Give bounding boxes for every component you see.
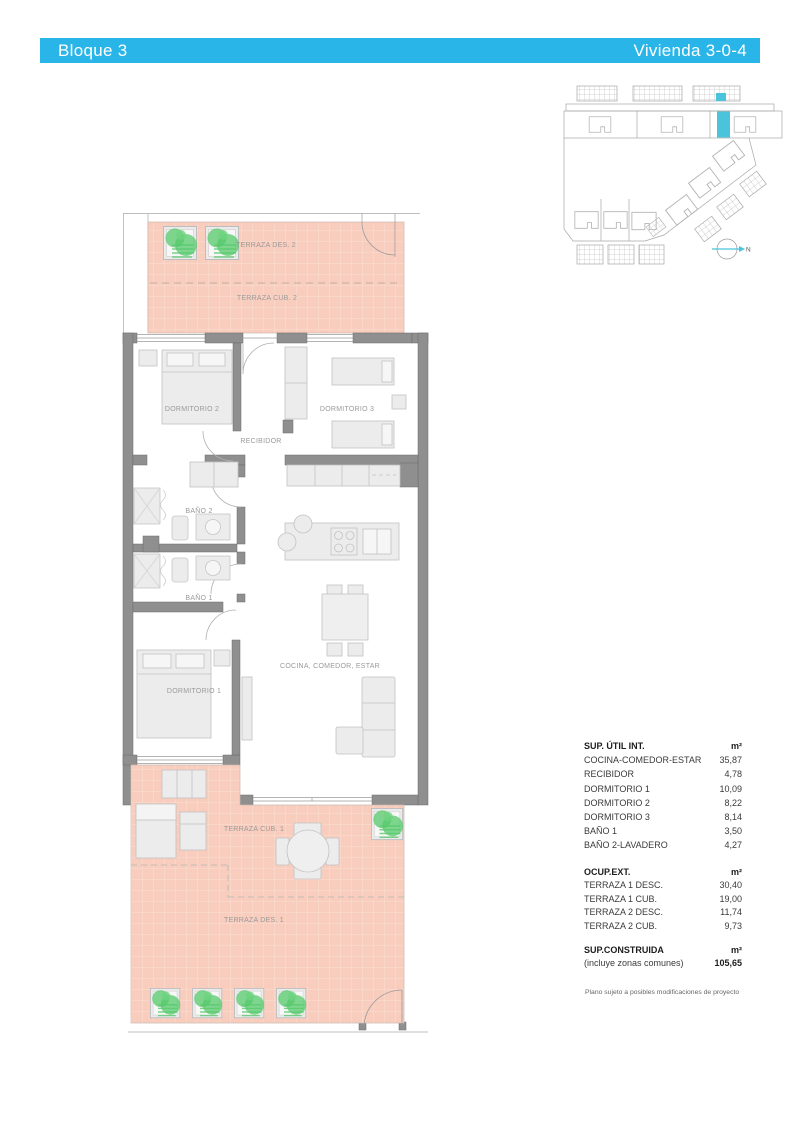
room-label-terraza-cub-1: TERRAZA CUB. 1 <box>224 826 284 833</box>
table-row: RECIBIDOR4,78 <box>584 767 742 781</box>
nightstand <box>139 350 157 366</box>
table-row: DORMITORIO 110,09 <box>584 782 742 796</box>
building-row <box>564 111 782 138</box>
terrace-1-planter-3 <box>234 988 264 1017</box>
window-dormitorio-2 <box>137 335 205 342</box>
stool <box>294 515 312 533</box>
toilet-bano-1 <box>172 558 188 582</box>
outdoor-lounger-2 <box>180 812 206 850</box>
terrace-1-planter-2 <box>192 988 222 1017</box>
outlying-pergolas <box>695 171 767 242</box>
stool <box>278 533 296 551</box>
disclaimer-note: Plano sujeto a posibles modificaciones d… <box>585 989 760 996</box>
table-row: BAÑO 13,50 <box>584 824 742 838</box>
kitchen-counter <box>287 465 400 486</box>
exterior-areas-table: OCUP.EXT. m² TERRAZA 1 DESC.30,40 TERRAZ… <box>584 866 742 933</box>
terrace-1-planter-4 <box>276 988 306 1017</box>
window-dormitorio-1 <box>137 757 223 764</box>
terrace-2-plant-2 <box>206 227 240 260</box>
bottom-left-buildings <box>575 199 656 241</box>
table-row: TERRAZA 1 CUB.19,00 <box>584 893 742 906</box>
access-band <box>566 104 774 111</box>
highlighted-unit <box>717 112 730 138</box>
sofa <box>362 677 395 757</box>
table-row: DORMITORIO 38,14 <box>584 810 742 824</box>
room-label-terraza-des-2: TERRAZA DES. 2 <box>236 242 296 249</box>
interior-areas-table: SUP. ÚTIL INT. m² COCINA-COMEDOR-ESTAR35… <box>584 739 742 853</box>
room-label-dormitorio-3: DORMITORIO 3 <box>320 406 374 413</box>
patio-table <box>287 830 329 872</box>
table-row: TERRAZA 2 DESC.11,74 <box>584 906 742 919</box>
sliding-door-living <box>253 798 372 802</box>
table-row: BAÑO 2-LAVADERO4,27 <box>584 838 742 852</box>
tv-unit <box>242 677 252 740</box>
table-row: TERRAZA 1 DESC.30,40 <box>584 879 742 892</box>
table-header: SUP. ÚTIL INT. m² <box>584 739 742 753</box>
table-header: SUP.CONSTRUIDA m² <box>584 944 742 957</box>
site-key-plan: N <box>564 86 782 264</box>
terrace-1: TERRAZA CUB. 1 TERRAZA DES. 1 <box>128 765 428 1032</box>
nightstand <box>214 650 230 666</box>
dining-chair <box>348 643 363 656</box>
table-row: DORMITORIO 28,22 <box>584 796 742 810</box>
pergola-grids-bottom <box>577 245 664 264</box>
terrace-2: TERRAZA DES. 2 TERRAZA CUB. 2 <box>123 213 420 333</box>
room-label-terraza-des-1: TERRAZA DES. 1 <box>224 917 284 924</box>
table-header: OCUP.EXT. m² <box>584 866 742 879</box>
north-indicator: N <box>712 239 751 259</box>
room-label-dormitorio-1: DORMITORIO 1 <box>167 688 221 695</box>
table-row: COCINA-COMEDOR-ESTAR35,87 <box>584 753 742 767</box>
dining-table <box>322 594 368 640</box>
terrace-1-plant <box>371 808 403 839</box>
dining-chair <box>327 643 342 656</box>
diagonal-buildings <box>646 140 745 236</box>
room-label-cocina: COCINA, COMEDOR, ESTAR <box>280 663 380 670</box>
door-entry <box>243 343 274 374</box>
room-label-dormitorio-2: DORMITORIO 2 <box>165 406 219 413</box>
north-label: N <box>746 247 751 254</box>
window-dormitorio-3 <box>307 335 353 342</box>
kitchen-living <box>278 465 400 757</box>
pergola-grids-top <box>577 86 740 101</box>
terrace-1-planter-1 <box>150 988 180 1017</box>
room-label-bano-1: BAÑO 1 <box>185 593 212 602</box>
toilet-bano-2 <box>172 516 188 540</box>
terrace-2-plant-1 <box>164 227 198 260</box>
sofa-chaise <box>336 727 363 754</box>
room-label-bano-2: BAÑO 2 <box>185 506 212 515</box>
plan-sheet: Bloque 3 Vivienda 3-0-4 <box>0 0 800 1132</box>
table-row: TERRAZA 2 CUB.9,73 <box>584 920 742 933</box>
table-row: (incluye zonas comunes) 105,65 <box>584 957 742 970</box>
door-dormitorio-1 <box>206 610 236 640</box>
room-label-terraza-cub-2: TERRAZA CUB. 2 <box>237 295 297 302</box>
built-area-table: SUP.CONSTRUIDA m² (incluye zonas comunes… <box>584 944 742 971</box>
nightstand <box>392 395 406 409</box>
room-label-recibidor: RECIBIDOR <box>240 438 281 445</box>
highlighted-parking-cell <box>716 93 726 101</box>
outdoor-bench <box>162 770 206 798</box>
